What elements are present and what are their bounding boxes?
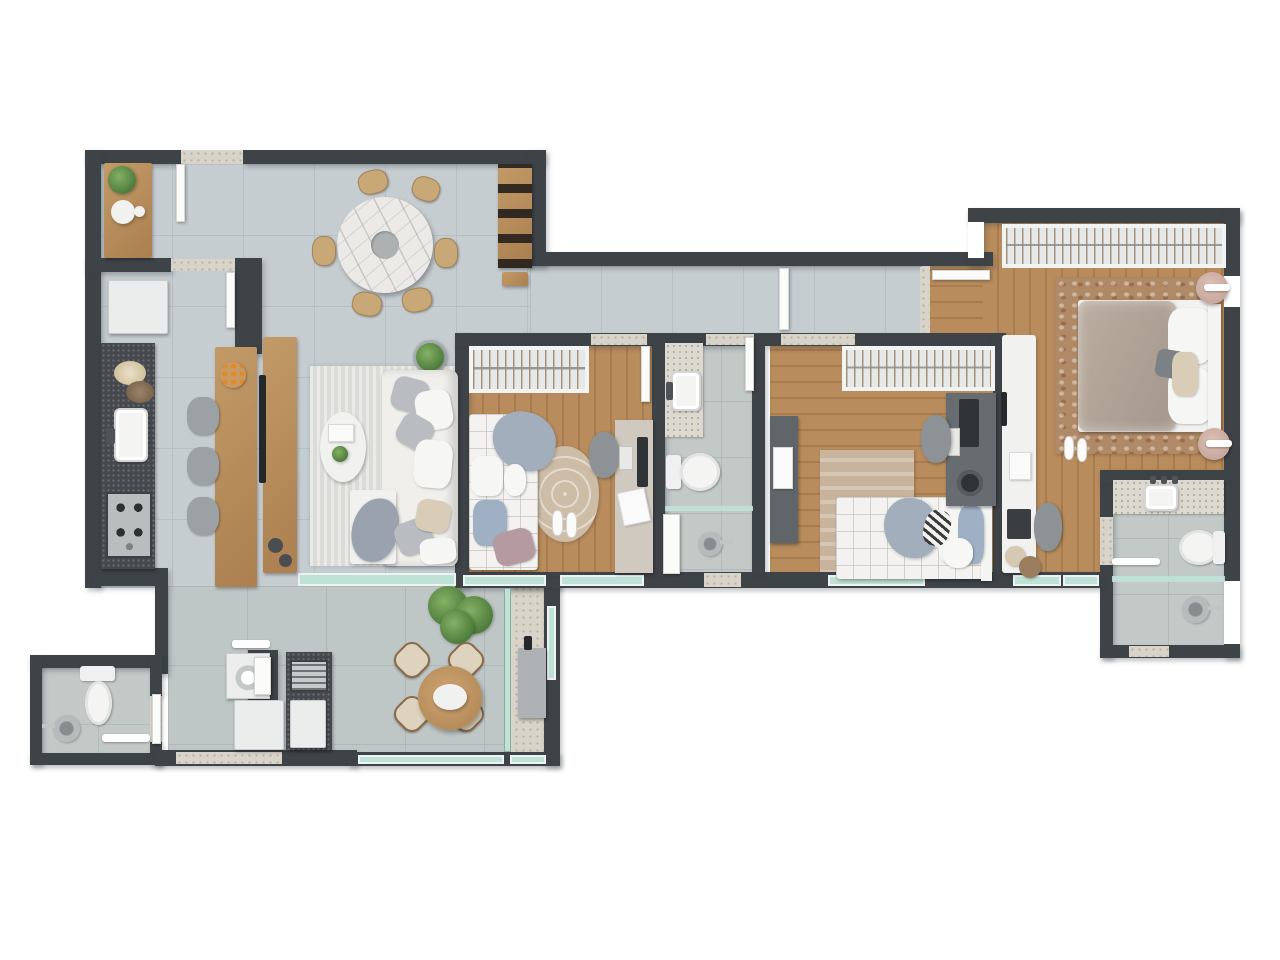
- sofa-pillow-6: [413, 497, 452, 534]
- apartment-floor-plan: [0, 0, 1280, 960]
- entry-cup: [134, 206, 145, 217]
- threshold-kitchen-door: [171, 259, 235, 271]
- glass-balcony-divider: [504, 588, 511, 752]
- bath1-toilet-tank: [666, 455, 681, 489]
- dining-centerpiece: [371, 231, 399, 259]
- mbath-toilet-tank: [1213, 531, 1225, 564]
- bath1-sink: [671, 371, 701, 411]
- sbath-toilet-bowl: [85, 681, 112, 725]
- coffee-table-plant: [332, 446, 348, 462]
- tech-faucet: [524, 636, 532, 650]
- wall-kitchen-corner: [235, 258, 262, 354]
- bath1-shower-glass: [665, 506, 753, 511]
- threshold-entry-door: [181, 150, 243, 164]
- master-pillow-cream: [1172, 352, 1198, 396]
- fridge: [108, 280, 168, 334]
- mbath-faucet-a: [1150, 476, 1156, 484]
- master-desk-figure: [1009, 452, 1031, 480]
- orange-bowl: [220, 362, 246, 388]
- sneaker-bd1-b: [566, 512, 577, 538]
- threshold-bath1-window: [704, 573, 741, 587]
- threshold-suite-door: [920, 267, 930, 333]
- bath1-shower-head: [698, 532, 722, 556]
- kitchen-sink: [114, 408, 148, 462]
- sbath-shower-arm: [42, 724, 55, 728]
- window-master-west: [968, 222, 984, 258]
- balcony-tray: [433, 684, 467, 710]
- window-balcony-a: [358, 755, 504, 764]
- door-leaf-suite: [932, 270, 990, 280]
- wall-sbath-west: [30, 655, 42, 765]
- window-bedroom1-a: [463, 575, 546, 586]
- tv-console: [263, 337, 297, 573]
- mbath-faucet-c: [1172, 476, 1178, 484]
- sneaker-master-a: [1064, 436, 1074, 460]
- bath1-shower-arm: [720, 540, 734, 544]
- sofa-pillow-4: [412, 438, 454, 489]
- tv-screen: [259, 375, 266, 483]
- wall-sbath-south: [30, 753, 162, 765]
- window-bedroom1-b: [560, 575, 644, 586]
- kitchen-faucet: [106, 428, 115, 444]
- door-leaf-sbath: [152, 694, 161, 744]
- threshold-bedroom1-door: [591, 334, 647, 345]
- bed-2-toy-dog: [943, 538, 973, 568]
- tech-console: [518, 648, 546, 718]
- balcony-plant-c: [440, 610, 474, 644]
- door-leaf-kitchen: [226, 272, 235, 328]
- mbath-shower-head: [1182, 596, 1209, 623]
- wall-kitchen-south: [95, 568, 168, 586]
- wall-corridor-north: [529, 252, 993, 266]
- balcony-mini-fridge: [290, 700, 326, 748]
- lamp-south: [1206, 440, 1232, 447]
- mbath-shower-glass: [1112, 576, 1225, 582]
- door-leaf-bath1-open: [663, 514, 680, 574]
- window-mbath-east: [1224, 581, 1240, 644]
- door-leaf-service: [254, 657, 271, 695]
- sbath-shower-head: [53, 715, 80, 742]
- master-pouf-b: [1019, 556, 1041, 578]
- window-master-b: [1063, 575, 1099, 586]
- coffee-table-books: [328, 424, 354, 442]
- threshold-mbath-window: [1129, 646, 1169, 657]
- bar-stool-1: [187, 397, 219, 435]
- closet-master: [1002, 224, 1226, 268]
- sneaker-bd1-a: [552, 510, 563, 536]
- chair-bedroom-2: [921, 415, 951, 463]
- master-keyboard: [1007, 509, 1031, 539]
- chair-bedroom-1: [589, 432, 619, 478]
- bed-1-toy-deer: [504, 464, 526, 496]
- door-leaf-bedroom-1: [641, 346, 650, 402]
- wine-cabinet: [498, 164, 532, 268]
- mbath-shower-arm: [1208, 606, 1222, 610]
- window-living-balcony: [298, 573, 456, 586]
- master-headboard: [1208, 304, 1221, 430]
- mbath-towel-bar: [1112, 558, 1160, 565]
- entry-plant: [108, 166, 136, 194]
- window-balcony-b: [510, 755, 546, 764]
- door-leaf-entry: [176, 164, 185, 222]
- wall-master-north: [968, 208, 1240, 223]
- entry-tray: [111, 200, 135, 224]
- poster-bedroom-2: [773, 447, 793, 489]
- console-decor-b: [279, 554, 292, 567]
- threshold-service-door: [176, 752, 282, 764]
- wall-west: [85, 150, 101, 588]
- sofa-pillow-7: [419, 536, 457, 565]
- stove: [106, 492, 152, 558]
- console-decor-a: [268, 538, 283, 553]
- sbath-towel-shelf: [102, 734, 150, 742]
- bar-side-item: [502, 272, 528, 286]
- wall-top-main: [243, 150, 545, 164]
- master-tv: [1001, 392, 1007, 426]
- wall-sbath-east-a: [150, 655, 162, 696]
- sneaker-master-b: [1077, 438, 1087, 462]
- kitchen-plate-b: [126, 381, 154, 403]
- closet-bedroom-1: [469, 346, 589, 393]
- floor-corridor: [530, 266, 922, 333]
- service-cabinet: [234, 700, 284, 750]
- bath1-toilet-bowl: [680, 453, 720, 491]
- closet-bedroom-2: [842, 346, 995, 391]
- threshold-mbath-door: [1100, 517, 1113, 565]
- window-master-a: [1013, 575, 1061, 586]
- bath1-faucet: [666, 382, 673, 400]
- lamp-north: [1204, 284, 1230, 291]
- living-plant: [416, 343, 444, 371]
- bar-stool-2: [187, 447, 219, 485]
- door-leaf-bedroom-2: [779, 268, 789, 330]
- master-chair: [1034, 503, 1062, 551]
- sbath-toilet-tank: [80, 666, 115, 681]
- mbath-faucet-b: [1161, 476, 1167, 484]
- threshold-bedroom2-door: [781, 334, 855, 345]
- service-shelf: [232, 640, 270, 648]
- bar-stool-3: [187, 497, 219, 535]
- grill: [290, 660, 328, 692]
- keyboard-bedroom-1: [619, 446, 633, 470]
- bed-1-pillow-white: [471, 456, 503, 496]
- monitor-bedroom-2: [959, 399, 979, 447]
- bin-bedroom-2: [957, 470, 983, 496]
- monitor-bedroom-1: [637, 437, 648, 487]
- window-tech-east: [547, 606, 556, 680]
- door-leaf-bath1: [745, 337, 754, 391]
- dining-chair-3: [312, 236, 336, 266]
- wall-mbath-south: [1100, 645, 1240, 658]
- dining-chair-4: [434, 238, 458, 268]
- wall-entry-nook: [85, 258, 171, 272]
- mbath-sink: [1144, 484, 1178, 511]
